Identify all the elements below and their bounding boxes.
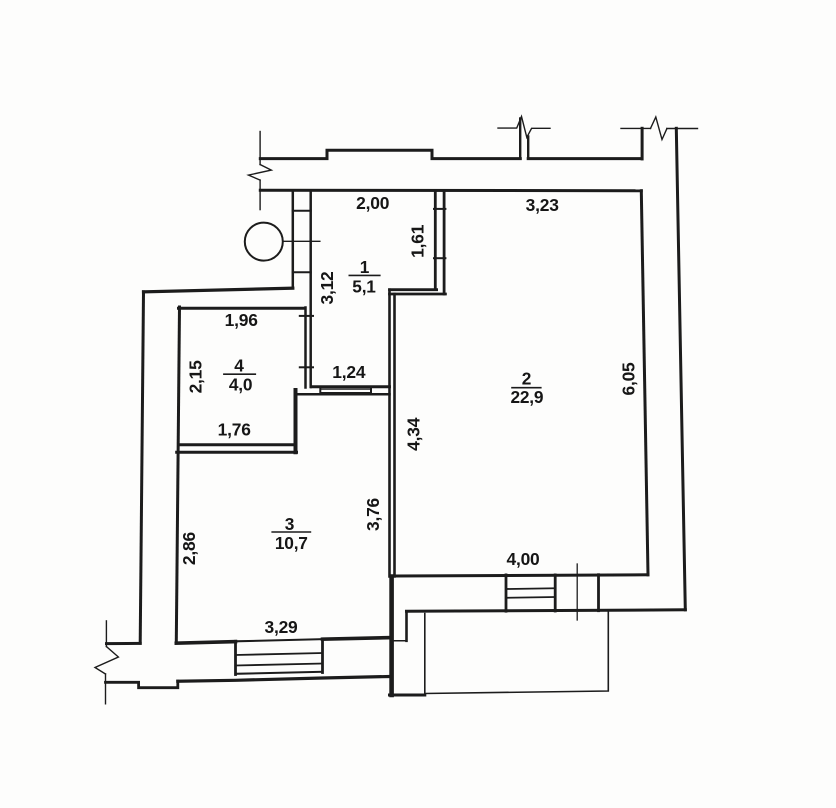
svg-text:4: 4 [234,356,244,376]
svg-text:4,00: 4,00 [506,549,539,569]
svg-text:1,76: 1,76 [218,419,252,439]
svg-text:4,34: 4,34 [404,417,424,451]
svg-text:1,96: 1,96 [225,310,259,330]
svg-text:3,23: 3,23 [526,195,560,215]
svg-text:22,9: 22,9 [510,387,543,407]
svg-text:3,29: 3,29 [264,617,298,637]
svg-text:10,7: 10,7 [275,533,308,553]
svg-text:6,05: 6,05 [619,362,639,396]
svg-text:3,76: 3,76 [363,497,383,531]
svg-text:4,0: 4,0 [229,375,252,395]
svg-text:1: 1 [360,257,370,277]
svg-text:2: 2 [522,369,531,389]
svg-text:3,12: 3,12 [317,271,337,304]
svg-text:2,00: 2,00 [356,193,389,213]
svg-text:2,15: 2,15 [185,360,205,394]
svg-text:1,24: 1,24 [332,362,366,382]
svg-text:2,86: 2,86 [179,532,199,566]
svg-text:1,61: 1,61 [408,224,428,258]
svg-text:5,1: 5,1 [352,276,376,296]
svg-text:3: 3 [285,514,294,534]
